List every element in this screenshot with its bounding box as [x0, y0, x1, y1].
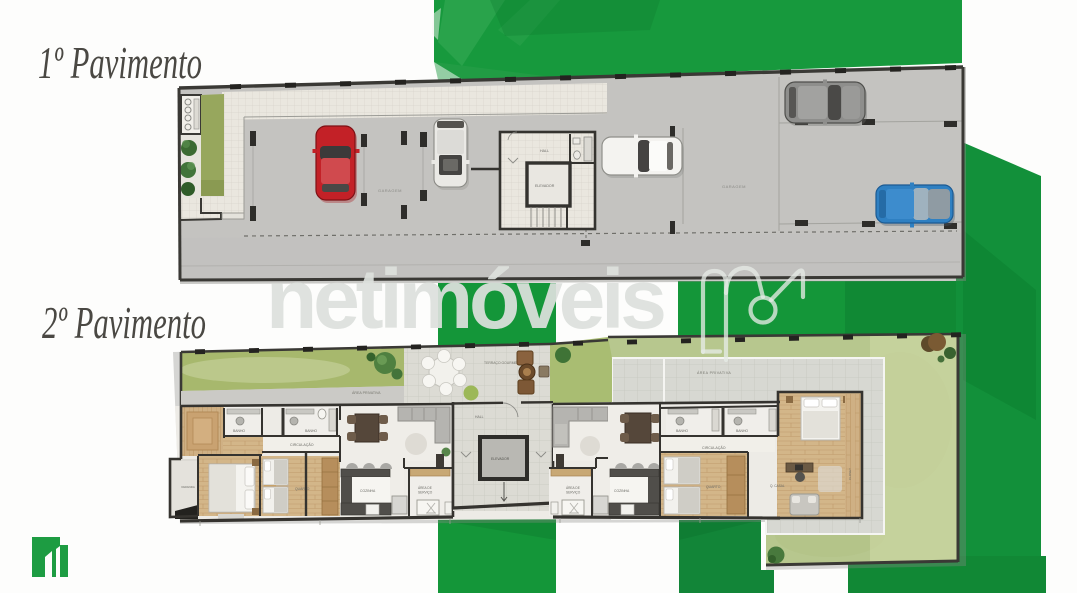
svg-text:CIRCULAÇÃO: CIRCULAÇÃO	[290, 442, 314, 447]
svg-text:HALL: HALL	[540, 149, 549, 153]
svg-text:QUARTO: QUARTO	[295, 487, 310, 491]
svg-text:TERRAÇO GOURMET: TERRAÇO GOURMET	[484, 361, 519, 365]
svg-text:ÁREA DE: ÁREA DE	[418, 486, 432, 490]
svg-text:GARAGEM: GARAGEM	[378, 188, 402, 193]
svg-text:ELEVADOR: ELEVADOR	[491, 457, 510, 461]
svg-text:SERVIÇO: SERVIÇO	[566, 491, 581, 495]
svg-text:Q. CASAL: Q. CASAL	[770, 484, 785, 488]
svg-text:ÁREA DE: ÁREA DE	[566, 486, 580, 490]
svg-text:netimóveis: netimóveis	[266, 252, 664, 346]
svg-text:SERVIÇO: SERVIÇO	[418, 491, 433, 495]
svg-text:QUARTO: QUARTO	[706, 485, 721, 489]
svg-text:COZINHA: COZINHA	[614, 489, 630, 493]
svg-text:1º Pavimento: 1º Pavimento	[38, 37, 202, 88]
svg-text:BANHO: BANHO	[233, 429, 245, 433]
svg-text:2º Pavimento: 2º Pavimento	[42, 297, 206, 348]
svg-text:BANHO: BANHO	[305, 429, 317, 433]
svg-text:COZINHA: COZINHA	[360, 489, 376, 493]
svg-text:VARANDA: VARANDA	[181, 485, 195, 489]
svg-text:BANHO: BANHO	[676, 429, 688, 433]
svg-text:HALL: HALL	[475, 415, 484, 419]
svg-text:BANHO: BANHO	[736, 429, 748, 433]
svg-text:CLOSET: CLOSET	[848, 468, 852, 480]
svg-text:CIRCULAÇÃO: CIRCULAÇÃO	[702, 445, 726, 450]
svg-text:GARAGEM: GARAGEM	[722, 184, 746, 189]
svg-text:ELEVADOR: ELEVADOR	[535, 184, 555, 188]
svg-text:ÁREA PRIVATIVA: ÁREA PRIVATIVA	[352, 391, 381, 395]
svg-text:ÁREA PRIVATIVA: ÁREA PRIVATIVA	[697, 371, 731, 375]
